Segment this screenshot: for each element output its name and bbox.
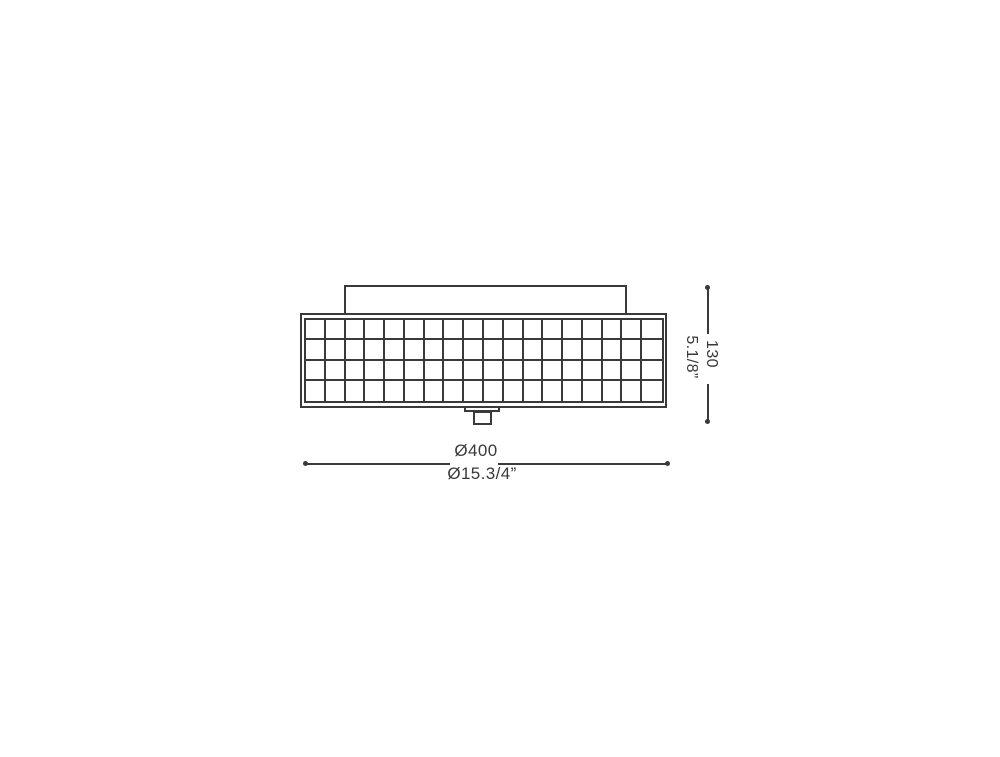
grid-cell (622, 340, 642, 360)
grid-cell (405, 361, 425, 381)
grid-cell (385, 320, 405, 340)
grid-cell (306, 361, 326, 381)
height-dim-line-bottom (707, 384, 709, 421)
grid-cell (385, 340, 405, 360)
grid-cell (346, 381, 366, 401)
grid-cell (504, 381, 524, 401)
grid-cell (484, 340, 504, 360)
grid-cell (326, 381, 346, 401)
grid-cell (306, 320, 326, 340)
grid-cell (622, 361, 642, 381)
grid-cell (425, 340, 445, 360)
grid-cell (484, 320, 504, 340)
grid-cell (583, 340, 603, 360)
width-label-inches: Ø15.3/4” (447, 464, 516, 484)
grid-cell (484, 381, 504, 401)
grid-cell (642, 381, 662, 401)
grid-cell (365, 340, 385, 360)
grid-cell (504, 340, 524, 360)
grid-cell (464, 320, 484, 340)
grid-cell (326, 320, 346, 340)
grid-cell (405, 381, 425, 401)
grid-cell (524, 361, 544, 381)
grid-cell (326, 340, 346, 360)
grid-cell (464, 361, 484, 381)
grid-cell (425, 381, 445, 401)
height-label-mm: 130 (702, 340, 720, 368)
grid-cell (543, 381, 563, 401)
grid-cell (603, 320, 623, 340)
grid-cell (563, 320, 583, 340)
grid-cell (326, 361, 346, 381)
height-dim-dot-top (705, 285, 710, 290)
finial-knob (473, 411, 492, 425)
grid-cell (524, 320, 544, 340)
grid-cell (484, 361, 504, 381)
grid-cell (306, 340, 326, 360)
grid-cell (385, 381, 405, 401)
grid-cell (385, 361, 405, 381)
grid-cell (346, 340, 366, 360)
grid-cell (543, 361, 563, 381)
grid-cell (504, 320, 524, 340)
drawing-canvas: 130 5.1/8” Ø400 Ø15.3/4” (0, 0, 1000, 757)
grid-cell (583, 381, 603, 401)
grid-cell (563, 361, 583, 381)
grid-cell (622, 381, 642, 401)
canopy-box (344, 285, 627, 313)
grid-cell (504, 361, 524, 381)
grid-cell (543, 340, 563, 360)
grid-cell (603, 340, 623, 360)
height-label-inches: 5.1/8” (682, 335, 700, 378)
grid-cell (622, 320, 642, 340)
height-dim-dot-bottom (705, 419, 710, 424)
width-dim-line-left (306, 463, 450, 465)
grid-cell (444, 361, 464, 381)
grid-cell (365, 361, 385, 381)
grid-cell (464, 381, 484, 401)
grid-cell (583, 361, 603, 381)
grid-cell (444, 340, 464, 360)
grid-cell (603, 361, 623, 381)
grid-cell (405, 340, 425, 360)
grid-panel (304, 318, 664, 403)
width-label-mm: Ø400 (454, 441, 497, 461)
height-dim-line-top (707, 287, 709, 334)
grid-cell (306, 381, 326, 401)
grid-cell (642, 361, 662, 381)
grid-cell (464, 340, 484, 360)
grid-cell (405, 320, 425, 340)
width-dim-line-right (498, 463, 668, 465)
grid-cell (603, 381, 623, 401)
grid-cell (563, 340, 583, 360)
grid-cell (444, 320, 464, 340)
grid-cell (425, 361, 445, 381)
grid-cell (642, 320, 662, 340)
width-dim-dot-left (303, 461, 308, 466)
grid-cell (425, 320, 445, 340)
grid-cell (524, 340, 544, 360)
grid-cell (583, 320, 603, 340)
grid-cell (543, 320, 563, 340)
grid-cell (346, 361, 366, 381)
grid-cell (524, 381, 544, 401)
grid-cell (563, 381, 583, 401)
grid-cell (365, 320, 385, 340)
grid-cell (642, 340, 662, 360)
grid-cell (346, 320, 366, 340)
width-dim-dot-right (665, 461, 670, 466)
grid-cell (365, 381, 385, 401)
grid-cell (444, 381, 464, 401)
